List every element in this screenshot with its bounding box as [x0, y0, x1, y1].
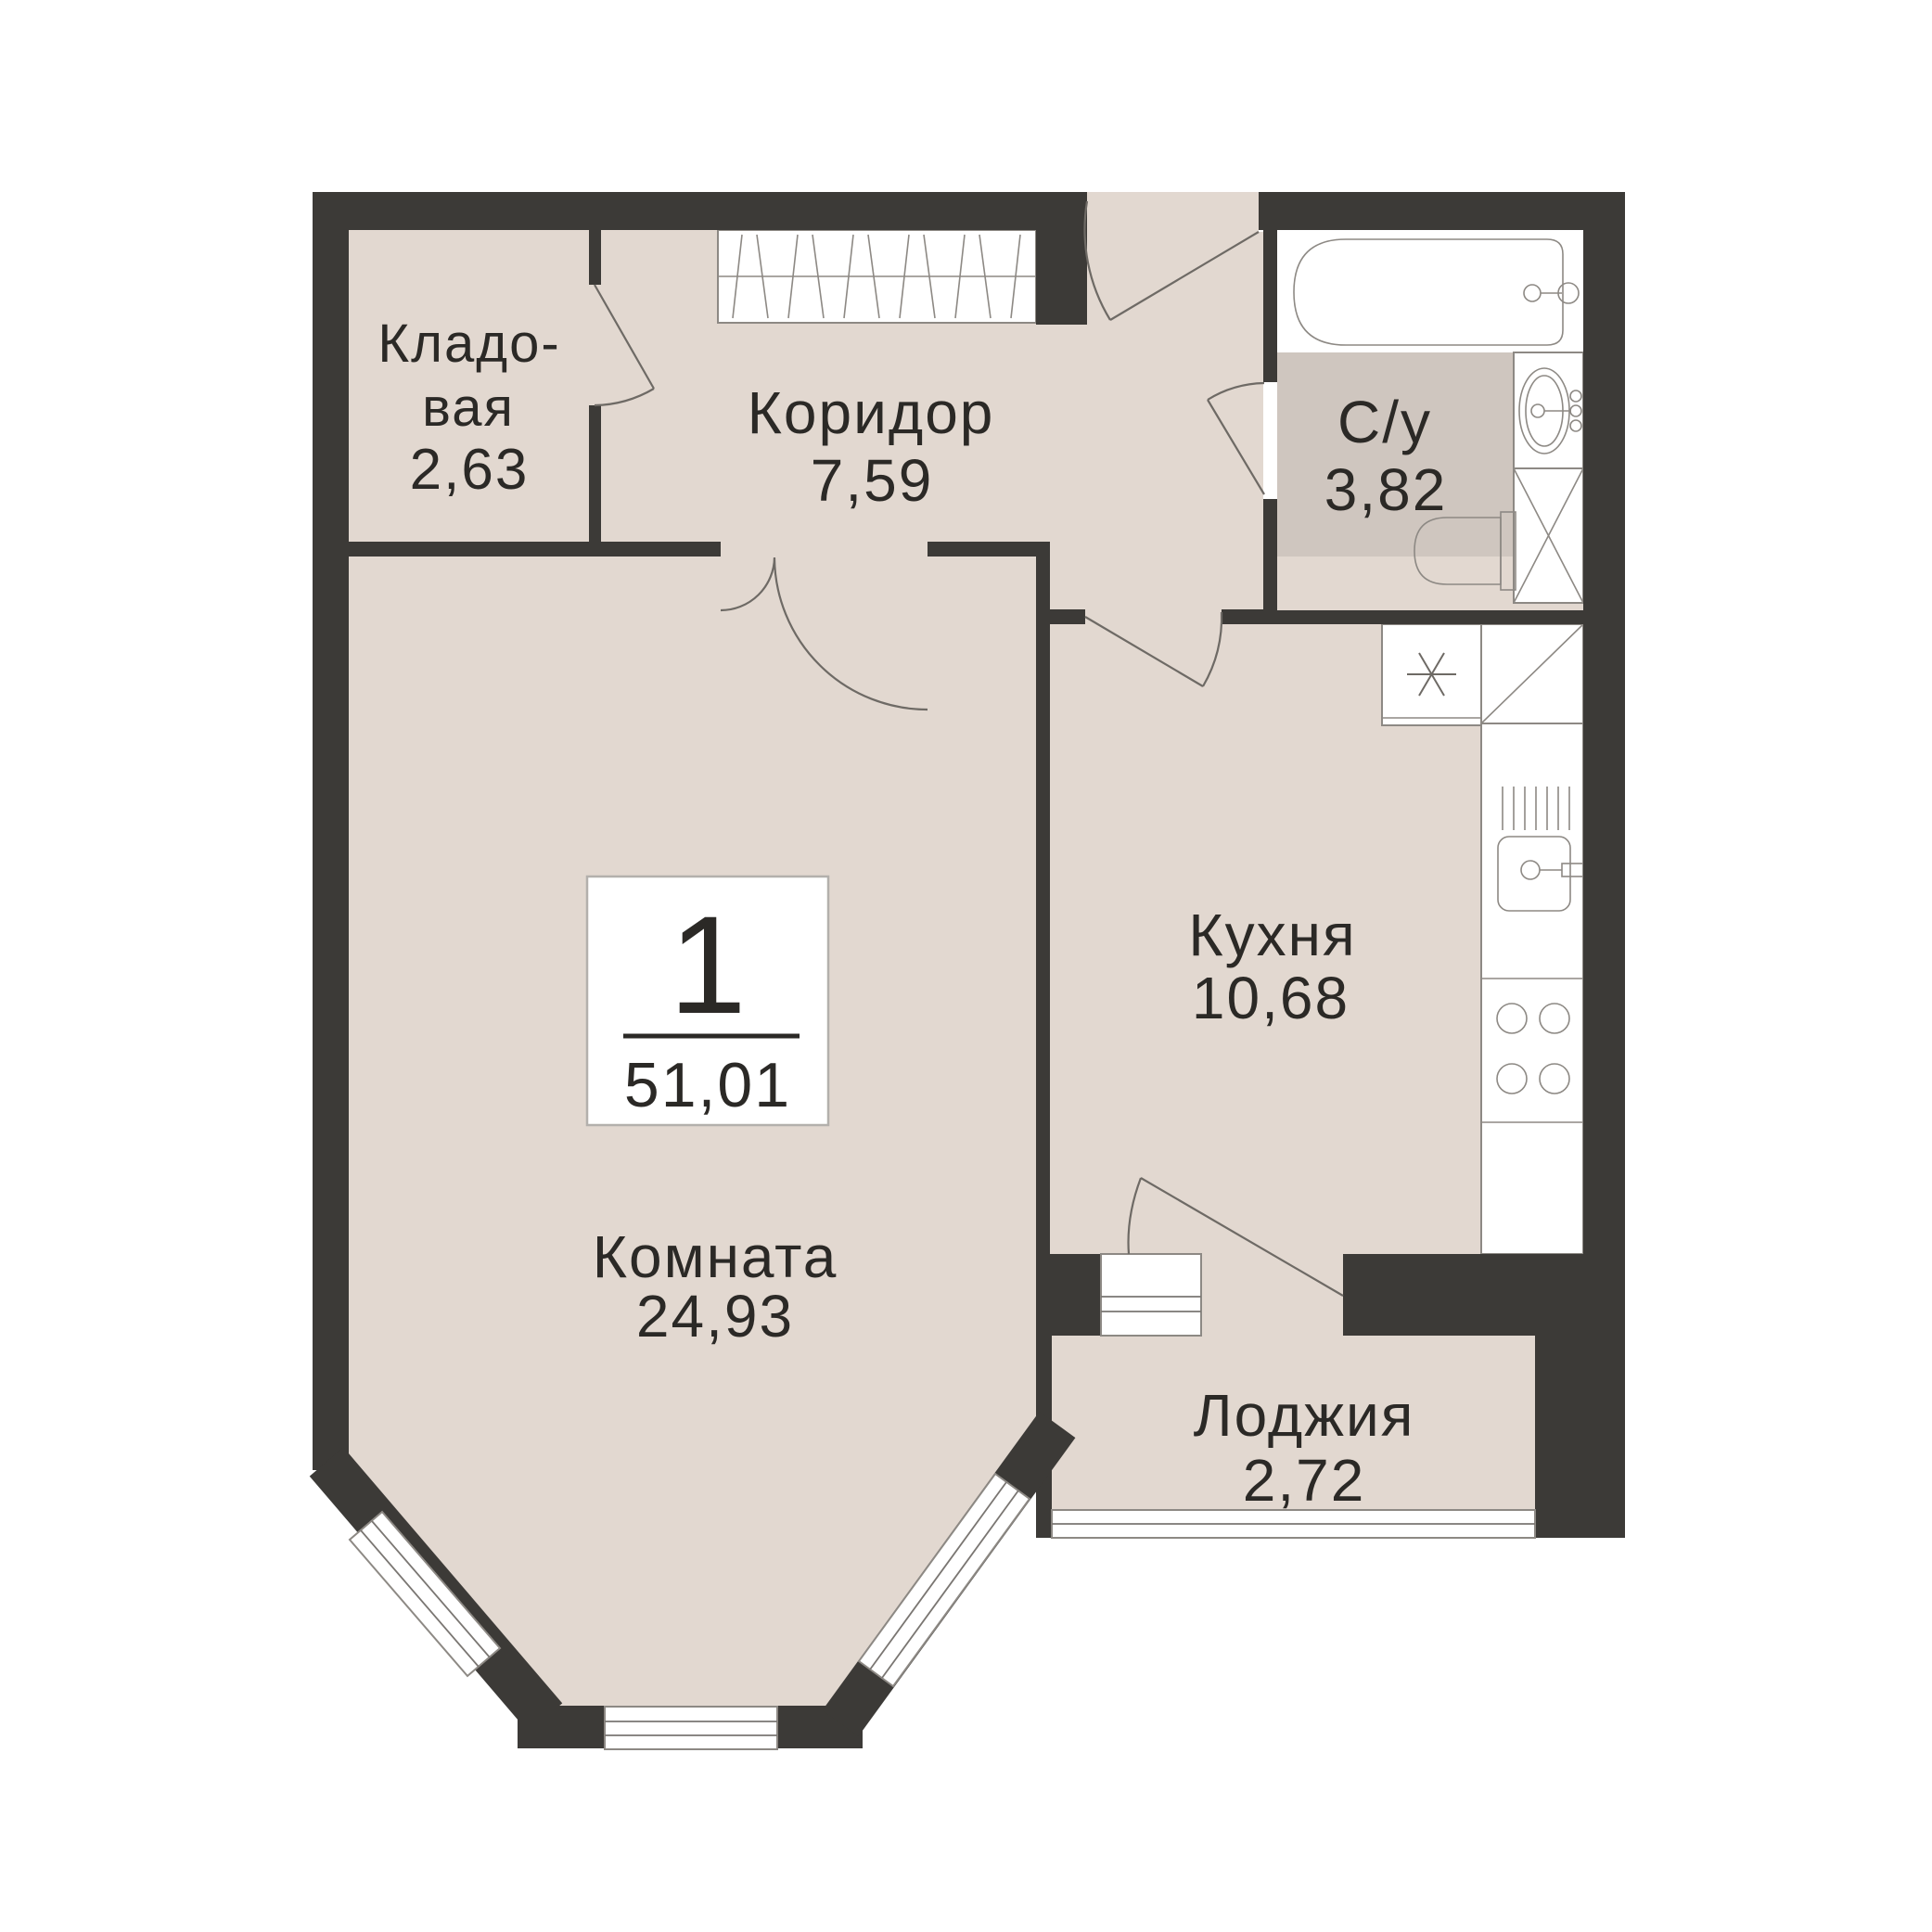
vent-shaft-icon — [1514, 468, 1583, 603]
fridge-icon — [1382, 624, 1481, 725]
unit-total-area: 51,01 — [624, 1050, 791, 1120]
bathroom-sink-icon — [1514, 352, 1583, 468]
kitchen-name: Кухня — [1188, 902, 1356, 968]
bathroom-area: 3,82 — [1324, 456, 1448, 523]
room-name: Комната — [593, 1223, 838, 1290]
room-area: 24,93 — [636, 1283, 794, 1350]
storage-area: 2,63 — [410, 438, 530, 502]
unit-rooms-count: 1 — [669, 887, 746, 1043]
bathtub-icon — [1277, 230, 1583, 352]
storage-name-line2: вая — [422, 377, 515, 438]
canvas: Кладо- вая 2,63 Коридор 7,59 С/у 3,82 Ку… — [0, 0, 1932, 1932]
storage-name-line1: Кладо- — [377, 313, 560, 374]
floor-plan: Кладо- вая 2,63 Коридор 7,59 С/у 3,82 Ку… — [0, 0, 1932, 1932]
kitchen-loggia-window — [1101, 1254, 1201, 1336]
corridor-area: 7,59 — [811, 447, 934, 514]
loggia-area: 2,72 — [1243, 1447, 1366, 1514]
unit-card: 1 51,01 — [587, 876, 828, 1125]
kitchen-counter — [1481, 723, 1583, 1254]
bay-window-bottom — [605, 1707, 777, 1749]
kitchen-corner-cabinet — [1481, 624, 1583, 723]
loggia-glazing — [1052, 1510, 1535, 1538]
corridor-name: Коридор — [748, 379, 995, 446]
balcony-door-opening-floor — [1201, 1254, 1343, 1336]
entrance-opening-floor — [1087, 192, 1259, 234]
wardrobe-icon — [718, 230, 1036, 323]
loggia-name: Лоджия — [1194, 1382, 1415, 1449]
kitchen-area: 10,68 — [1192, 965, 1350, 1031]
bathroom-name: С/у — [1337, 389, 1432, 455]
